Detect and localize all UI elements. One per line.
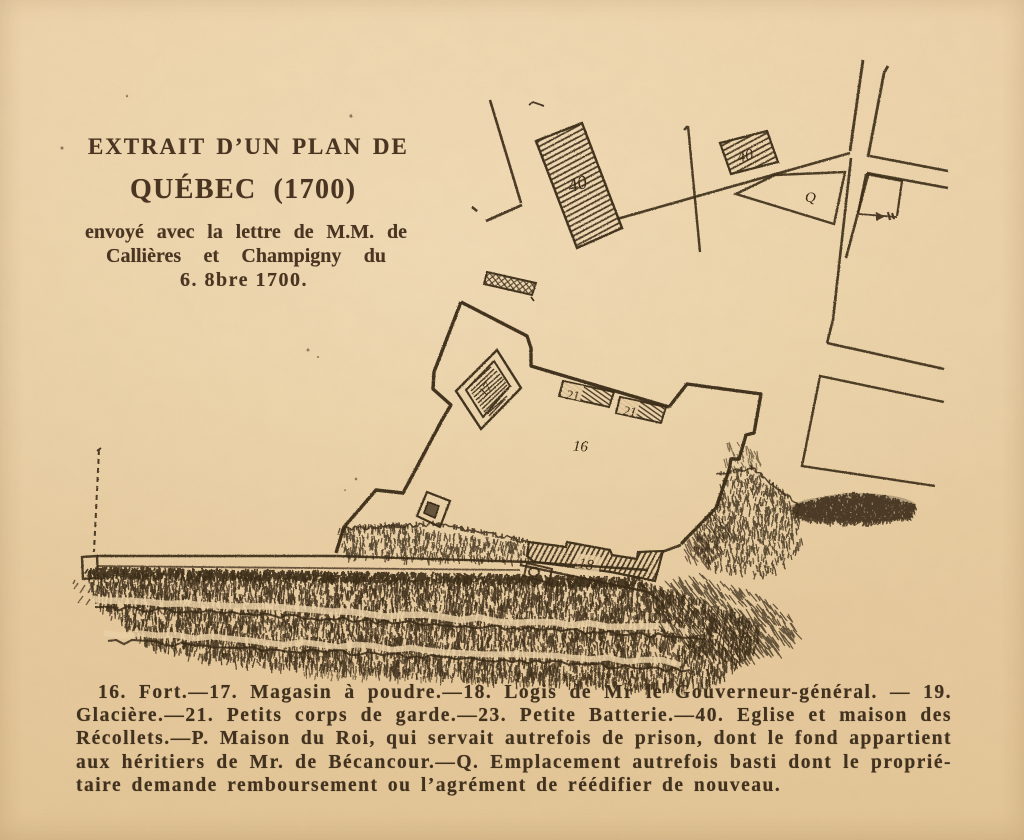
svg-text:Q: Q [805, 190, 816, 206]
svg-text:21: 21 [565, 387, 580, 404]
svg-text:16: 16 [572, 439, 589, 456]
svg-text:21: 21 [622, 403, 637, 420]
